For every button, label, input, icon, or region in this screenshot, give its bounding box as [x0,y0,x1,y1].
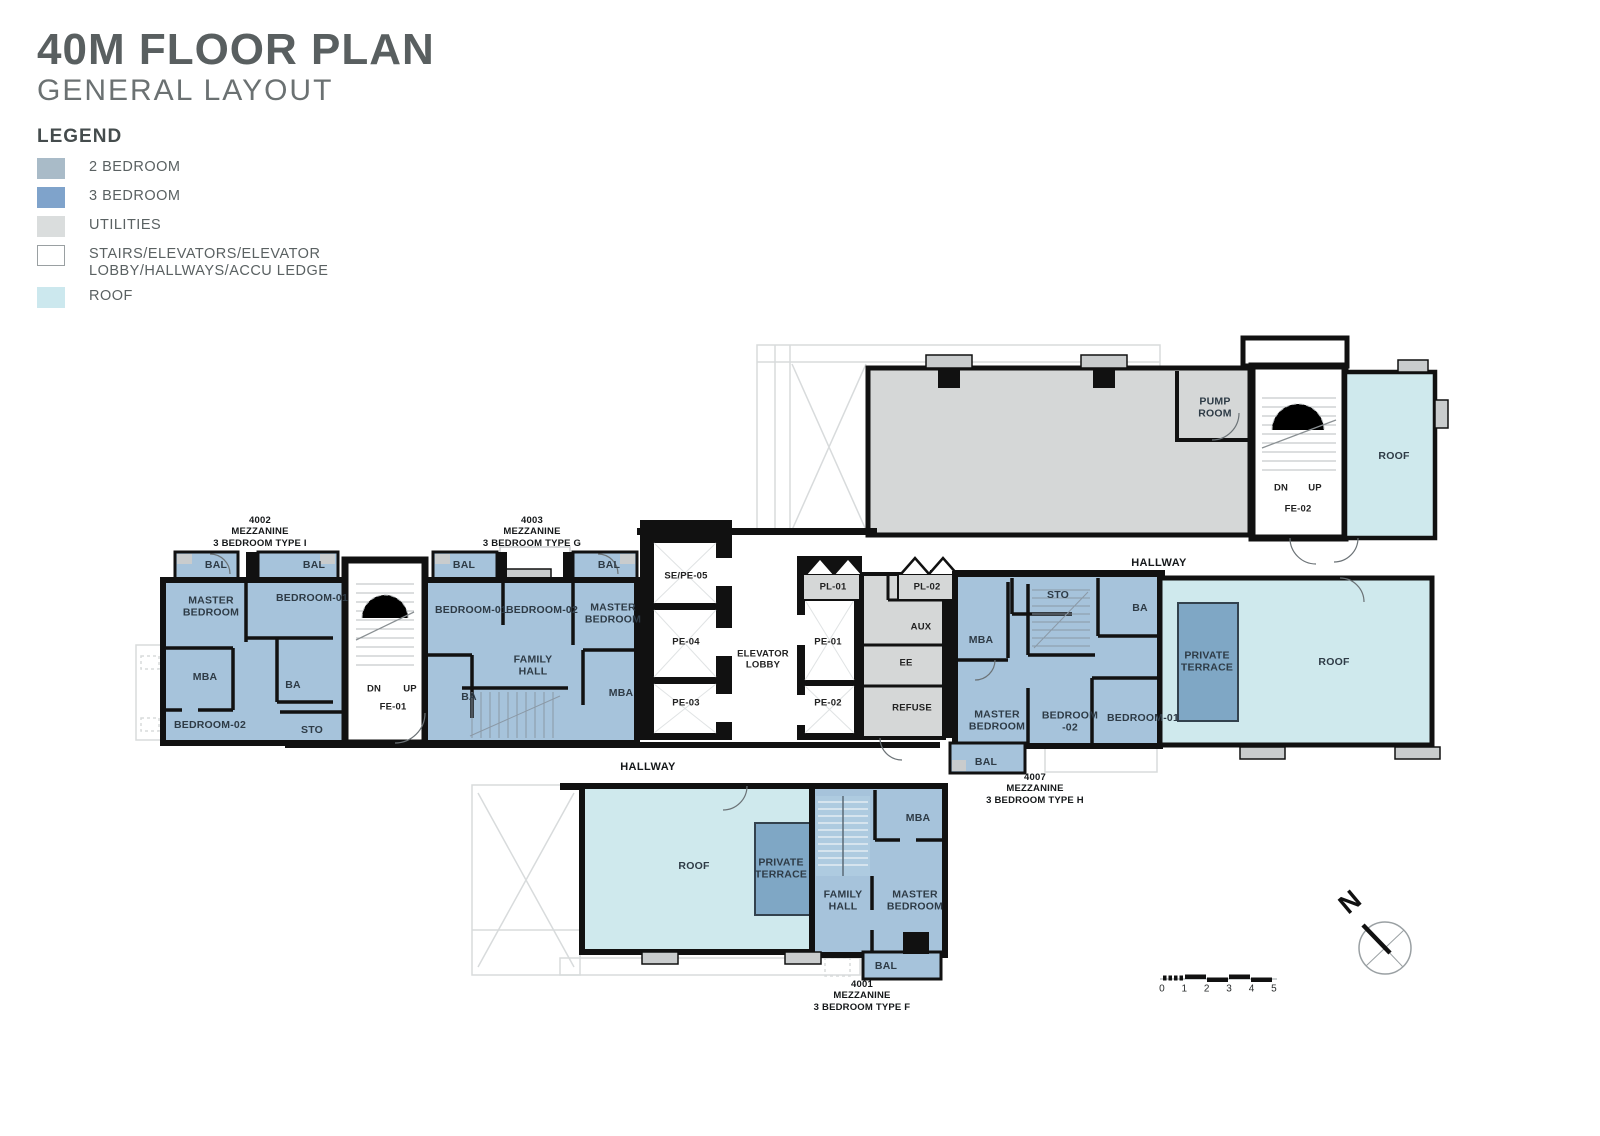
scale-bar [1160,975,1277,983]
floorplan: 4002 MEZZANINE 3 BEDROOM TYPE I4003 MEZZ… [0,0,1600,1136]
north-arrow [1359,922,1411,974]
floor-plan-page: 40M FLOOR PLAN GENERAL LAYOUT LEGEND 2 B… [0,0,1600,1136]
floorplan-drawing [0,0,1600,1136]
